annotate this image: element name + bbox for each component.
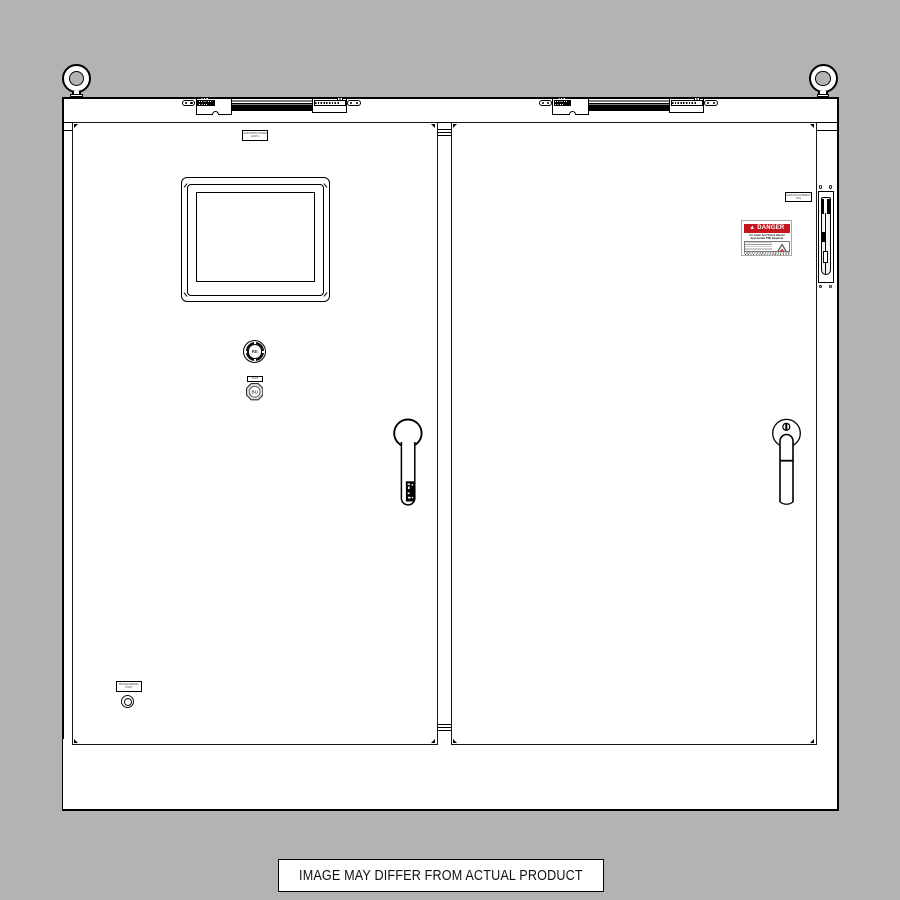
svg-text:BU: BU (252, 390, 258, 395)
